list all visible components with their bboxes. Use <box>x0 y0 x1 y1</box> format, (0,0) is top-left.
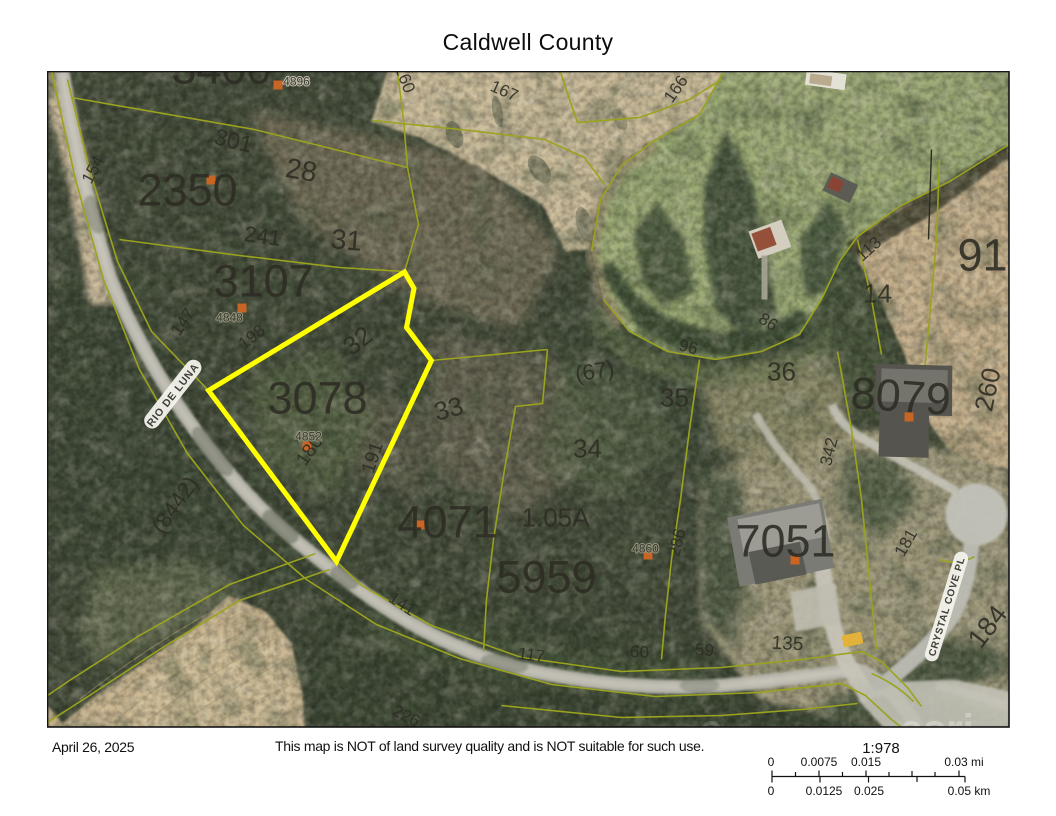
svg-text:3400: 3400 <box>171 71 271 94</box>
svg-text:2350: 2350 <box>137 165 237 216</box>
svg-text:4896: 4896 <box>283 75 310 89</box>
svg-text:35: 35 <box>660 383 689 413</box>
svg-text:3078: 3078 <box>267 373 367 424</box>
svg-text:91: 91 <box>957 230 1007 281</box>
svg-text:4071: 4071 <box>397 497 497 548</box>
svg-text:5959: 5959 <box>496 552 596 603</box>
svg-text:117: 117 <box>517 644 546 667</box>
svg-text:0.0125: 0.0125 <box>806 784 843 798</box>
svg-text:1.05A: 1.05A <box>522 503 591 533</box>
svg-text:7051: 7051 <box>735 516 835 567</box>
svg-text:31: 31 <box>330 223 364 257</box>
svg-text:14: 14 <box>863 279 892 309</box>
svg-text:0: 0 <box>768 784 775 798</box>
svg-text:34: 34 <box>573 434 602 464</box>
svg-text:4860: 4860 <box>632 542 659 556</box>
svg-text:esri: esri <box>900 706 975 729</box>
svg-text:0.0075: 0.0075 <box>801 755 838 769</box>
svg-text:135: 135 <box>771 633 804 656</box>
svg-text:e: e <box>700 706 723 729</box>
svg-text:0.025: 0.025 <box>854 784 884 798</box>
svg-text:0.05 km: 0.05 km <box>948 784 991 798</box>
svg-text:0: 0 <box>768 755 775 769</box>
svg-text:0.03 mi: 0.03 mi <box>944 755 983 769</box>
svg-text:28: 28 <box>283 152 319 188</box>
svg-text:3107: 3107 <box>213 256 313 307</box>
svg-text:4848: 4848 <box>216 311 243 325</box>
svg-text:59: 59 <box>694 640 714 660</box>
svg-text:60: 60 <box>629 642 649 662</box>
svg-text:241: 241 <box>243 221 283 251</box>
svg-text:36: 36 <box>767 357 796 387</box>
svg-text:0.015: 0.015 <box>851 755 881 769</box>
svg-text:4852: 4852 <box>295 430 322 444</box>
svg-text:8079: 8079 <box>849 367 952 425</box>
